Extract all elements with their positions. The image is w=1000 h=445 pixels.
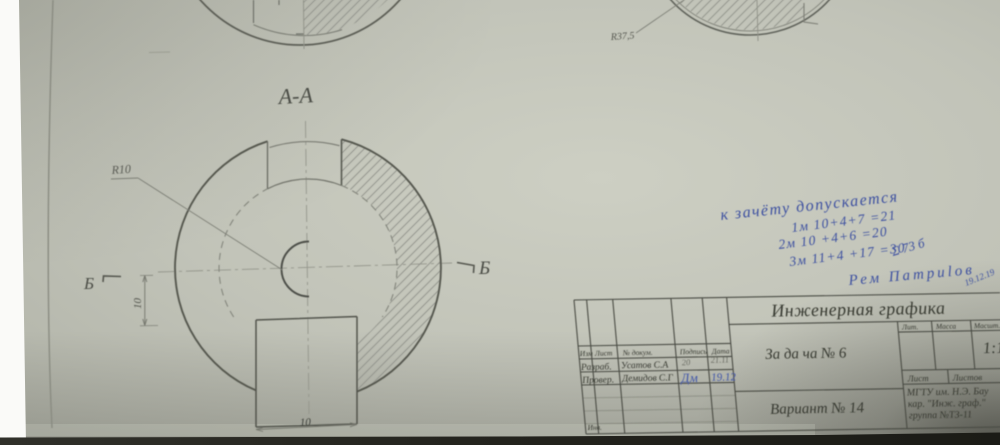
svg-text:21.11: 21.11 — [710, 354, 729, 364]
svg-text:А-А: А-А — [276, 82, 314, 109]
svg-text:Б: Б — [83, 274, 94, 293]
svg-text:Разраб.: Разраб. — [580, 361, 612, 373]
svg-text:Инв.: Инв. — [586, 423, 602, 432]
svg-text:Демидов С.Г: Демидов С.Г — [621, 372, 674, 384]
svg-text:20: 20 — [681, 357, 691, 367]
svg-text:19.12: 19.12 — [711, 371, 737, 383]
svg-text:Лит.: Лит. — [901, 322, 919, 331]
svg-text:Провер.: Провер. — [581, 375, 615, 386]
svg-text:Инженерная графика: Инженерная графика — [769, 298, 946, 321]
svg-text:Масса: Масса — [935, 322, 957, 331]
svg-text:МГТУ им. Н.Э. Бау: МГТУ им. Н.Э. Бау — [905, 386, 989, 398]
svg-text:Изм: Изм — [578, 349, 593, 358]
svg-text:R37,5: R37,5 — [609, 30, 634, 43]
svg-text:10: 10 — [300, 416, 312, 429]
svg-text:Листов: Листов — [951, 372, 982, 382]
svg-text:За да ча № 6: За да ча № 6 — [765, 345, 848, 362]
svg-text:Масшт.: Масшт. — [973, 321, 1000, 330]
svg-text:Вариант № 14: Вариант № 14 — [769, 400, 865, 418]
svg-text:R10: R10 — [110, 162, 131, 177]
svg-text:Подпись: Подпись — [678, 347, 707, 356]
svg-text:10: 10 — [132, 298, 144, 310]
svg-text:Дм: Дм — [678, 370, 698, 385]
svg-text:кар. "Инж. граф.": кар. "Инж. граф." — [907, 398, 987, 410]
svg-text:1:1: 1:1 — [982, 340, 1000, 357]
svg-text:Лист: Лист — [593, 348, 613, 357]
svg-text:группа №ТЗ-11: группа №ТЗ-11 — [908, 409, 972, 421]
svg-text:Б: Б — [478, 258, 490, 279]
svg-text:Лист: Лист — [906, 373, 929, 383]
svg-text:Усатов С.А: Усатов С.А — [621, 361, 669, 372]
svg-text:№ докум.: № докум. — [621, 348, 653, 358]
